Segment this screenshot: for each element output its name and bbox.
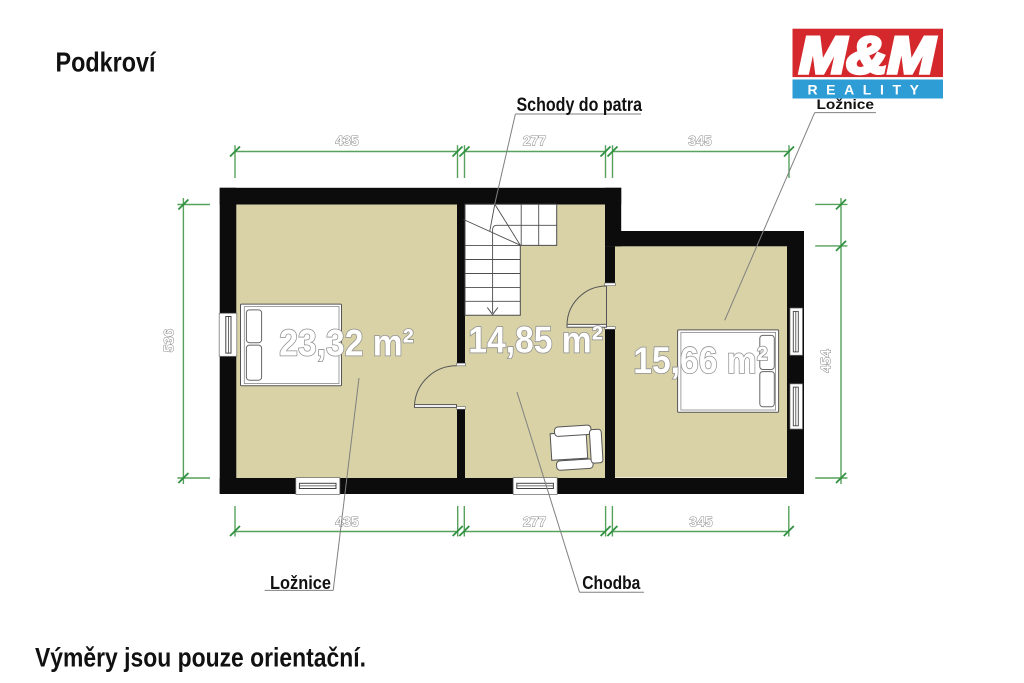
svg-text:15,66 m²: 15,66 m² [633,339,768,381]
svg-text:Ložnice: Ložnice [270,573,331,593]
svg-text:23,32 m²: 23,32 m² [279,321,414,363]
svg-text:277: 277 [523,513,547,529]
svg-text:Chodba: Chodba [582,573,641,593]
svg-text:435: 435 [335,132,359,148]
svg-text:454: 454 [818,349,834,373]
svg-text:536: 536 [161,329,177,353]
svg-text:Schody do patra: Schody do patra [517,95,643,116]
svg-text:345: 345 [688,132,712,148]
svg-text:Výměry jsou pouze orientační.: Výměry jsou pouze orientační. [35,643,366,673]
svg-text:435: 435 [335,513,359,529]
svg-text:14,85 m²: 14,85 m² [468,318,603,360]
svg-text:345: 345 [689,513,713,529]
svg-text:REALITY: REALITY [807,82,927,98]
svg-text:Ložnice: Ložnice [817,97,875,112]
svg-text:Podkroví: Podkroví [56,47,157,78]
svg-text:277: 277 [523,132,547,148]
svg-text:M&M: M&M [799,27,937,85]
